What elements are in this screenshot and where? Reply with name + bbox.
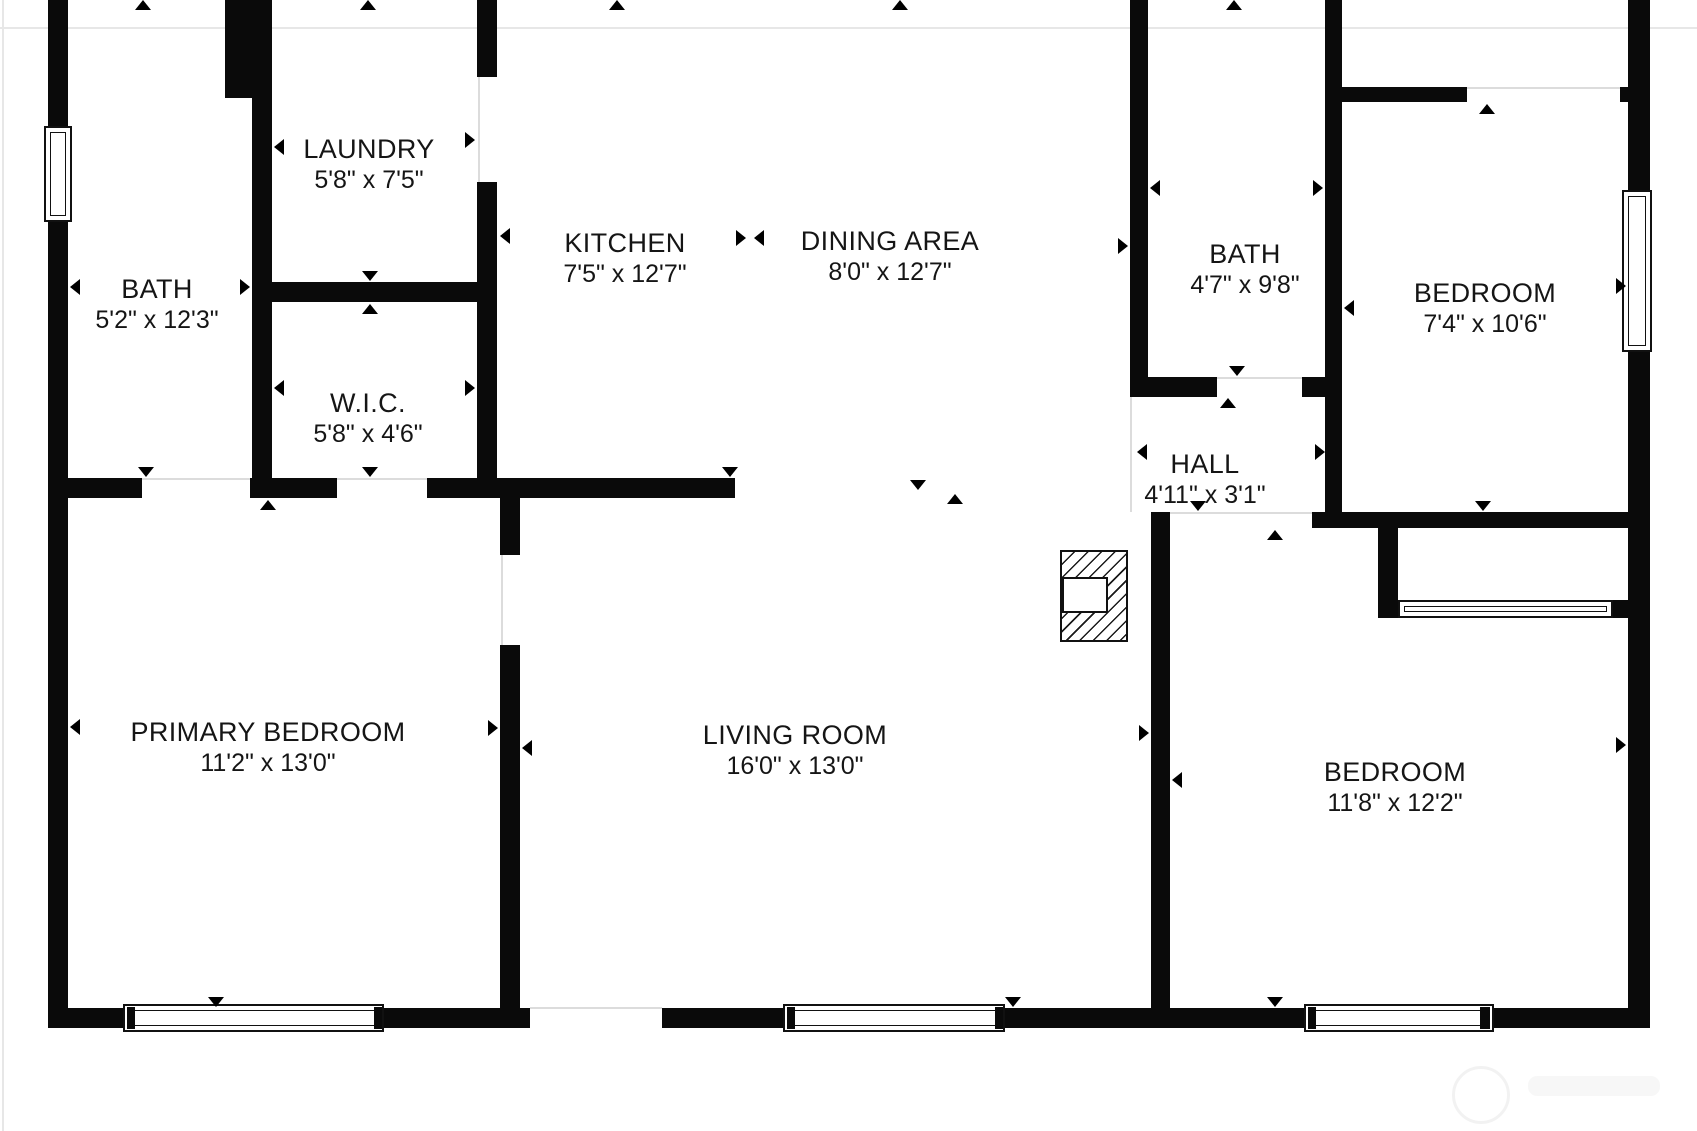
dimension-arrow-left-icon xyxy=(1150,180,1160,196)
wall xyxy=(250,478,337,498)
room-label-dining-area: DINING AREA8'0" x 12'7" xyxy=(801,225,979,289)
dimension-arrow-left-icon xyxy=(500,228,510,244)
window-symbol xyxy=(123,1004,384,1032)
window-pane xyxy=(789,1010,999,1026)
window-jamb xyxy=(127,1007,135,1029)
dimension-arrow-up-icon xyxy=(947,494,963,504)
wall xyxy=(48,478,142,498)
wall xyxy=(382,1008,530,1028)
room-name-laundry: LAUNDRY xyxy=(303,133,434,165)
dimension-arrow-down-icon xyxy=(362,467,378,477)
dimension-arrow-right-icon xyxy=(488,720,498,736)
dimension-arrow-down-icon xyxy=(1267,997,1283,1007)
door-opening-line xyxy=(478,77,480,182)
window-symbol xyxy=(1622,190,1652,352)
dimension-arrow-up-icon xyxy=(1479,104,1495,114)
dimension-arrow-left-icon xyxy=(1344,300,1354,316)
wall xyxy=(48,222,68,1028)
room-dimensions-wic: 5'8" x 4'6" xyxy=(313,420,422,451)
wall xyxy=(1628,350,1650,1028)
wall xyxy=(1003,1008,1306,1028)
dimension-arrow-up-icon xyxy=(1267,530,1283,540)
wall xyxy=(427,478,735,498)
wall xyxy=(1130,0,1148,397)
room-label-living-room: LIVING ROOM16'0" x 13'0" xyxy=(703,719,887,783)
wall xyxy=(252,282,497,302)
room-name-dining-area: DINING AREA xyxy=(801,225,979,257)
window-symbol xyxy=(44,126,72,222)
wall xyxy=(1325,504,1340,512)
room-dimensions-living-room: 16'0" x 13'0" xyxy=(703,752,887,783)
dimension-arrow-right-icon xyxy=(1139,725,1149,741)
dimension-arrow-up-icon xyxy=(1226,0,1242,10)
room-dimensions-laundry: 5'8" x 7'5" xyxy=(303,166,434,197)
dimension-arrow-up-icon xyxy=(609,0,625,10)
window-jamb xyxy=(374,1007,382,1029)
room-label-kitchen: KITCHEN7'5" x 12'7" xyxy=(563,227,686,291)
window-pane xyxy=(1404,606,1607,612)
wall xyxy=(662,1008,785,1028)
door-opening-line xyxy=(142,478,250,480)
room-label-bath-left: BATH5'2" x 12'3" xyxy=(95,273,218,337)
room-label-primary-bedroom: PRIMARY BEDROOM11'2" x 13'0" xyxy=(130,716,405,780)
watermark-logo-icon xyxy=(1452,1066,1510,1124)
dimension-arrow-up-icon xyxy=(1220,398,1236,408)
watermark-text-ghost xyxy=(1528,1076,1660,1096)
dimension-arrow-left-icon xyxy=(274,139,284,155)
dimension-arrow-right-icon xyxy=(240,279,250,295)
room-name-living-room: LIVING ROOM xyxy=(703,719,887,751)
wall xyxy=(1342,87,1467,102)
dimension-arrow-right-icon xyxy=(736,230,746,246)
dimension-arrow-right-icon xyxy=(1313,180,1323,196)
room-dimensions-bedroom-bottom: 11'8" x 12'2" xyxy=(1324,789,1466,820)
room-dimensions-hall: 4'11" x 3'1" xyxy=(1144,481,1265,512)
dimension-arrow-up-icon xyxy=(360,0,376,10)
room-dimensions-bath-right: 4'7" x 9'8" xyxy=(1190,271,1299,302)
dimension-arrow-left-icon xyxy=(70,719,80,735)
door-opening-line xyxy=(1170,512,1312,514)
door-opening-line xyxy=(1467,87,1620,89)
dimension-arrow-down-icon xyxy=(138,467,154,477)
wall xyxy=(48,1008,125,1028)
dimension-arrow-left-icon xyxy=(70,279,80,295)
floor-plan-canvas: BATH5'2" x 12'3"LAUNDRY5'8" x 7'5"W.I.C.… xyxy=(0,0,1697,1131)
door-opening-line xyxy=(1130,397,1132,512)
wall xyxy=(1620,87,1628,102)
wall xyxy=(1378,600,1400,618)
window-pane xyxy=(129,1010,378,1026)
window-symbol xyxy=(1398,600,1613,618)
dimension-arrow-down-icon xyxy=(1475,501,1491,511)
wall xyxy=(477,182,497,478)
wall xyxy=(48,0,68,128)
dimension-arrow-up-icon xyxy=(892,0,908,10)
dimension-arrow-right-icon xyxy=(1315,444,1325,460)
wall xyxy=(1151,512,1170,1008)
wall xyxy=(1613,600,1628,618)
crop-edge-line xyxy=(2,0,4,1131)
window-pane xyxy=(50,132,66,216)
wall xyxy=(252,98,272,282)
room-name-bath-right: BATH xyxy=(1190,238,1299,270)
window-symbol xyxy=(1304,1004,1494,1032)
room-label-hall: HALL4'11" x 3'1" xyxy=(1144,448,1265,512)
room-label-bedroom-bottom: BEDROOM11'8" x 12'2" xyxy=(1324,756,1466,820)
dimension-arrow-down-icon xyxy=(722,467,738,477)
window-jamb xyxy=(787,1007,795,1029)
dimension-arrow-right-icon xyxy=(1616,737,1626,753)
window-jamb xyxy=(995,1007,1003,1029)
wall xyxy=(1325,0,1342,512)
window-jamb xyxy=(1308,1007,1316,1029)
wall xyxy=(500,498,520,555)
room-name-kitchen: KITCHEN xyxy=(563,227,686,259)
dimension-arrow-left-icon xyxy=(274,380,284,396)
room-dimensions-bedroom-top: 7'4" x 10'6" xyxy=(1414,310,1556,341)
room-name-hall: HALL xyxy=(1144,448,1265,480)
room-name-bath-left: BATH xyxy=(95,273,218,305)
dimension-arrow-right-icon xyxy=(465,132,475,148)
window-pane xyxy=(1628,196,1646,346)
door-opening-line xyxy=(501,555,503,645)
dimension-arrow-right-icon xyxy=(1118,238,1128,254)
room-name-primary-bedroom: PRIMARY BEDROOM xyxy=(130,716,405,748)
room-dimensions-kitchen: 7'5" x 12'7" xyxy=(563,260,686,291)
window-symbol xyxy=(783,1004,1005,1032)
room-dimensions-primary-bedroom: 11'2" x 13'0" xyxy=(130,749,405,780)
dimension-arrow-down-icon xyxy=(362,271,378,281)
wall xyxy=(1628,0,1650,192)
wall xyxy=(225,0,272,98)
dimension-arrow-left-icon xyxy=(754,230,764,246)
room-label-wic: W.I.C.5'8" x 4'6" xyxy=(313,387,422,451)
wall xyxy=(1130,377,1217,397)
dimension-arrow-left-icon xyxy=(1172,772,1182,788)
wall xyxy=(252,302,272,478)
dimension-arrow-down-icon xyxy=(208,997,224,1007)
dimension-arrow-right-icon xyxy=(465,380,475,396)
wall xyxy=(1492,1008,1650,1028)
wall xyxy=(1302,377,1325,397)
wall xyxy=(1312,512,1630,528)
dimension-arrow-up-icon xyxy=(362,304,378,314)
dimension-arrow-right-icon xyxy=(1616,278,1626,294)
fireplace-firebox xyxy=(1062,577,1108,613)
door-opening-line xyxy=(530,1007,662,1009)
room-label-laundry: LAUNDRY5'8" x 7'5" xyxy=(303,133,434,197)
door-opening-line xyxy=(337,478,427,480)
wall xyxy=(477,0,497,77)
room-name-bedroom-top: BEDROOM xyxy=(1414,277,1556,309)
dimension-arrow-down-icon xyxy=(910,480,926,490)
room-dimensions-dining-area: 8'0" x 12'7" xyxy=(801,258,979,289)
dimension-arrow-down-icon xyxy=(1005,997,1021,1007)
window-pane xyxy=(1310,1010,1488,1026)
wall xyxy=(500,645,520,1008)
window-jamb xyxy=(1480,1007,1490,1029)
door-opening-line xyxy=(1217,377,1302,379)
room-dimensions-bath-left: 5'2" x 12'3" xyxy=(95,306,218,337)
dimension-arrow-up-icon xyxy=(260,500,276,510)
dimension-arrow-up-icon xyxy=(135,0,151,10)
room-label-bedroom-top: BEDROOM7'4" x 10'6" xyxy=(1414,277,1556,341)
room-label-bath-right: BATH4'7" x 9'8" xyxy=(1190,238,1299,302)
dimension-arrow-down-icon xyxy=(1229,366,1245,376)
room-name-wic: W.I.C. xyxy=(313,387,422,419)
dimension-arrow-left-icon xyxy=(522,740,532,756)
room-name-bedroom-bottom: BEDROOM xyxy=(1324,756,1466,788)
